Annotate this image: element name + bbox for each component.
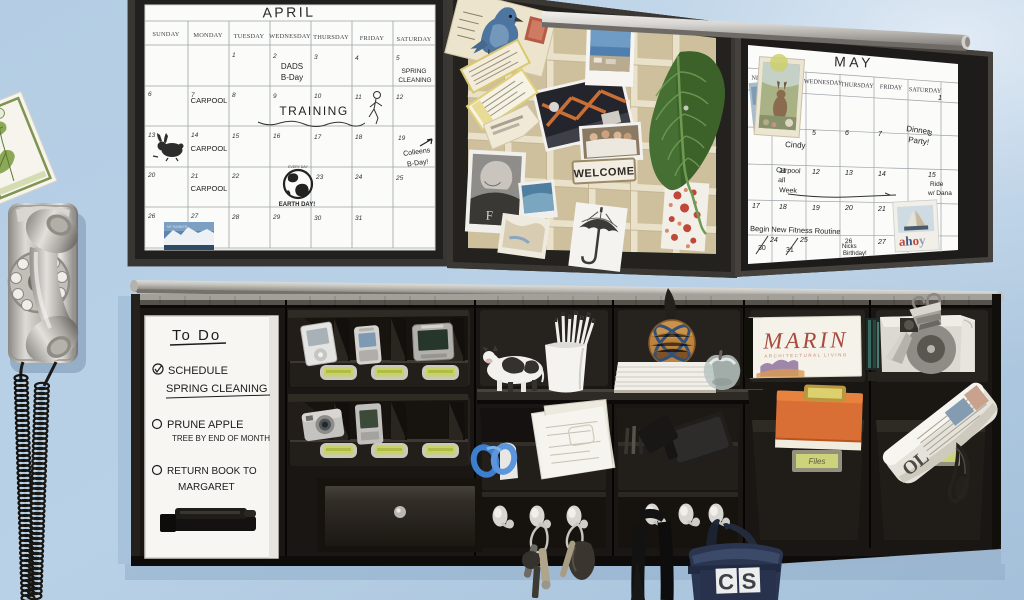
svg-text:10: 10 [314,93,322,100]
svg-text:SPRING: SPRING [402,68,427,75]
svg-text:Nicks: Nicks [842,244,857,250]
svg-text:all: all [778,177,786,184]
svg-text:14: 14 [878,171,886,178]
svg-text:CARPOOL: CARPOOL [191,96,228,105]
svg-text:SUNDAY: SUNDAY [152,31,179,38]
svg-text:15: 15 [232,133,240,140]
svg-text:31: 31 [355,215,363,222]
svg-text:25: 25 [395,175,404,182]
svg-text:TUESDAY: TUESDAY [234,33,265,40]
svg-text:11: 11 [779,168,786,175]
svg-text:PRUNE APPLE: PRUNE APPLE [167,419,243,431]
svg-text:12: 12 [396,94,404,101]
svg-text:SCHEDULE: SCHEDULE [168,365,228,377]
svg-text:5: 5 [396,55,400,62]
svg-text:27: 27 [190,213,199,220]
svg-text:13: 13 [845,170,853,177]
svg-text:6: 6 [845,130,849,137]
svg-text:2: 2 [272,53,277,60]
svg-text:19: 19 [398,135,406,142]
svg-text:Birthday!: Birthday! [843,251,867,257]
svg-text:6: 6 [148,91,152,98]
svg-text:28: 28 [231,214,240,221]
svg-text:C: C [718,569,735,595]
svg-text:SPRING CLEANING: SPRING CLEANING [166,383,267,395]
svg-text:9: 9 [273,93,277,100]
svg-text:3: 3 [314,54,318,61]
svg-text:27: 27 [877,239,887,246]
svg-text:TREE BY END OF MONTH: TREE BY END OF MONTH [172,434,270,443]
svg-text:18: 18 [779,204,787,211]
svg-text:ahoy: ahoy [898,232,926,248]
svg-text:29: 29 [272,214,281,221]
svg-text:4: 4 [355,55,359,62]
svg-text:12: 12 [812,169,820,176]
svg-text:Ride: Ride [930,181,944,188]
svg-text:15: 15 [928,172,936,179]
svg-text:FRIDAY: FRIDAY [360,35,385,42]
svg-text:B-Day: B-Day [281,73,303,82]
svg-text:EVERY DAY: EVERY DAY [288,165,308,169]
svg-text:18: 18 [355,134,363,141]
svg-text:APRIL: APRIL [262,4,315,21]
svg-text:CLEANING: CLEANING [398,77,431,84]
svg-text:21: 21 [190,173,199,180]
svg-text:23: 23 [315,174,324,181]
svg-text:26: 26 [147,213,156,220]
svg-text:21: 21 [877,206,886,213]
svg-text:w/ Dana: w/ Dana [927,190,952,197]
svg-text:To Do: To Do [172,327,221,344]
svg-text:WEDNESDAY: WEDNESDAY [269,33,311,40]
svg-text:SATURDAY: SATURDAY [396,36,431,43]
svg-text:24: 24 [769,237,778,244]
svg-text:THURSDAY: THURSDAY [313,34,349,41]
svg-text:22: 22 [231,173,240,180]
svg-text:24: 24 [354,174,363,181]
svg-text:RETURN BOOK TO: RETURN BOOK TO [167,466,257,477]
svg-text:19: 19 [812,205,820,212]
svg-text:30: 30 [314,215,322,222]
svg-text:Cindy: Cindy [785,140,806,150]
svg-text:20: 20 [844,205,853,212]
svg-text:MT RAINIER: MT RAINIER [167,225,188,229]
svg-text:17: 17 [752,203,761,210]
svg-text:MARIN: MARIN [762,327,849,354]
svg-text:MONDAY: MONDAY [193,32,223,39]
svg-text:25: 25 [799,237,808,244]
svg-text:MARGARET: MARGARET [178,482,235,493]
svg-text:16: 16 [273,133,281,140]
svg-text:F: F [485,208,493,223]
svg-text:5: 5 [812,130,816,137]
svg-text:FRIDAY: FRIDAY [880,83,903,91]
svg-text:MAY: MAY [834,53,874,70]
svg-text:EARTH DAY!: EARTH DAY! [279,202,315,208]
svg-text:20: 20 [147,172,156,179]
svg-text:8: 8 [232,92,236,99]
svg-text:DADS: DADS [281,62,303,71]
svg-text:1: 1 [938,95,942,102]
svg-text:TRAINING: TRAINING [279,104,348,118]
svg-text:17: 17 [314,134,322,141]
svg-text:Files: Files [809,457,826,466]
svg-text:13: 13 [148,132,156,139]
svg-text:CARPOOL: CARPOOL [191,184,228,193]
svg-text:11: 11 [355,94,362,101]
svg-text:14: 14 [191,132,199,139]
svg-text:1: 1 [232,52,236,59]
svg-text:CARPOOL: CARPOOL [191,144,228,153]
svg-text:S: S [741,568,757,593]
